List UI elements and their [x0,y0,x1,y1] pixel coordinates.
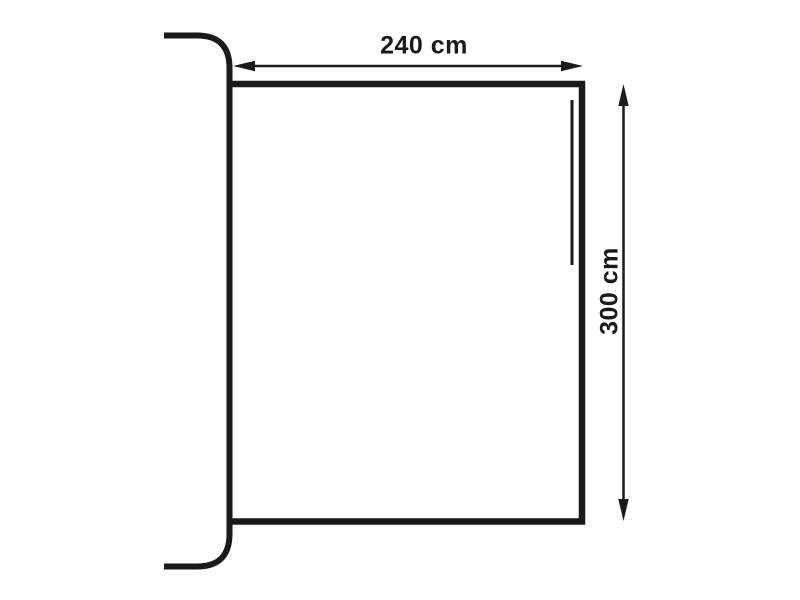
arrowhead-right-icon [561,61,583,71]
caravan-wall-profile [164,36,230,567]
arrowhead-down-icon [618,499,628,521]
arrowhead-up-icon [618,84,628,106]
width-dimension-arrow [233,61,583,71]
arrowhead-left-icon [233,61,255,71]
awning-dimension-diagram [0,0,800,600]
width-dimension-label: 240 cm [380,32,468,61]
awning-outline [230,84,583,522]
diagram-canvas: 240 cm 300 cm [0,0,800,600]
height-dimension-label: 300 cm [596,247,625,335]
